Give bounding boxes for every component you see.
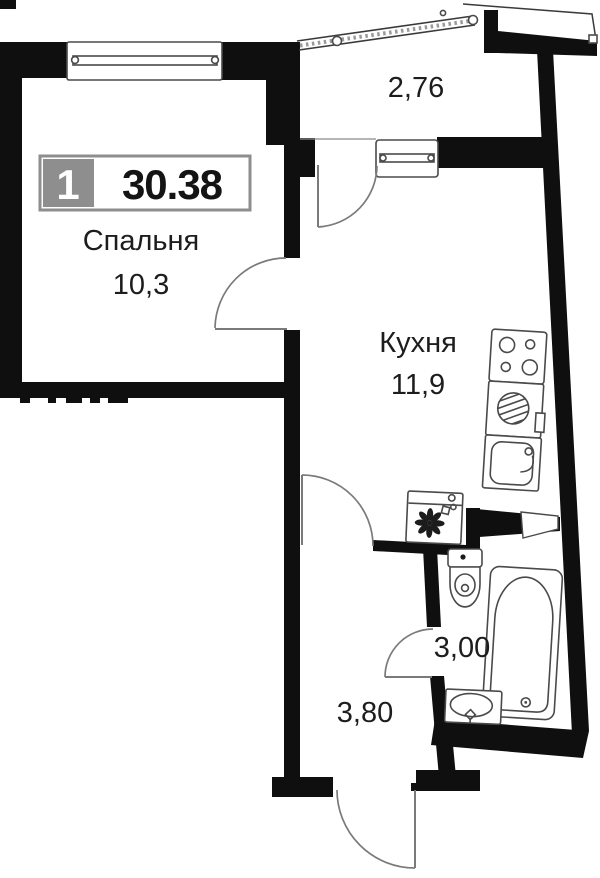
kitchen-hall-door <box>302 475 373 546</box>
kitchen-unit <box>482 329 550 491</box>
kitchen-window <box>376 140 438 177</box>
balcony-door <box>318 165 377 227</box>
bedroom-name: Спальня <box>83 225 200 257</box>
total-area: 30.38 <box>122 161 223 208</box>
unit-badge: 1 30.38 <box>40 156 250 210</box>
bedroom-door <box>215 258 287 329</box>
bathroom-door <box>385 629 433 677</box>
kitchen-area: 11,9 <box>391 369 445 401</box>
entrance-door <box>337 783 420 868</box>
stove-icon <box>489 329 547 384</box>
wall-niche <box>521 512 558 538</box>
toilet-icon <box>448 549 482 607</box>
shaft-hatch <box>20 398 128 403</box>
bedroom-area: 10,3 <box>113 269 169 301</box>
unit-number: 1 <box>56 161 79 208</box>
kitchen-name: Кухня <box>379 327 457 359</box>
dishwasher-icon <box>486 381 547 438</box>
bathroom-sink-icon <box>445 689 502 724</box>
hallway-area: 3,80 <box>337 697 393 729</box>
floor-plan: 1 30.38 Спальня 10,3 2,76 Кухня 11,9 3,0… <box>0 0 600 878</box>
balcony-area: 2,76 <box>388 72 444 104</box>
kitchen-sink-icon <box>482 435 541 491</box>
washing-machine-icon <box>406 491 463 544</box>
bedroom-window <box>67 42 222 80</box>
floor-plan-page: 1 30.38 Спальня 10,3 2,76 Кухня 11,9 3,0… <box>0 0 600 878</box>
bathroom-area: 3,00 <box>434 632 490 664</box>
